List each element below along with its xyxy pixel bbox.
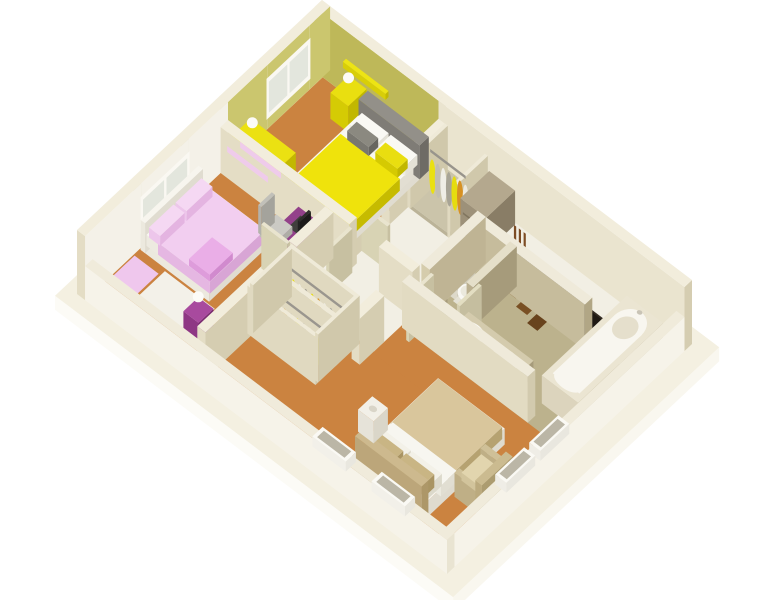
- floor-plan-3d-render: [0, 0, 780, 600]
- floor-plan-stage: [0, 0, 780, 600]
